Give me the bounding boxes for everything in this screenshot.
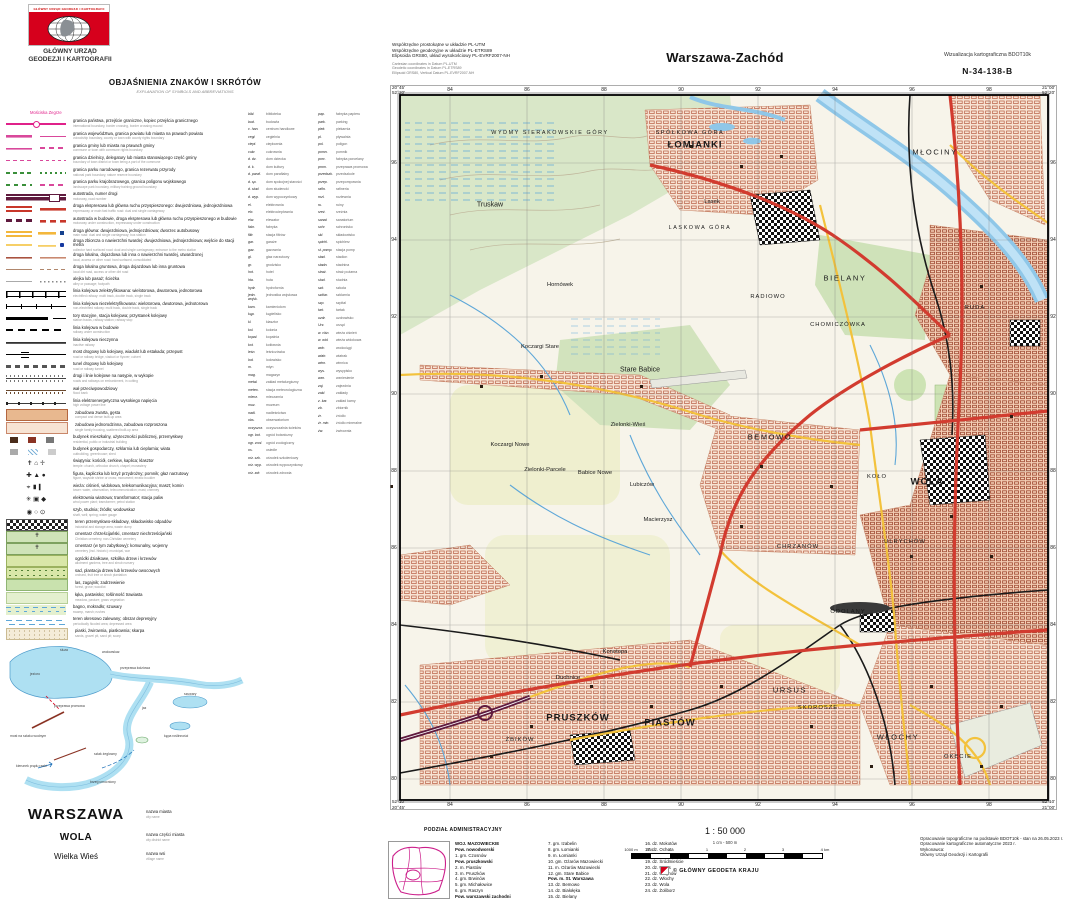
- grid-northing: 96: [1050, 160, 1056, 166]
- abbreviation-code: hydr.: [248, 286, 266, 290]
- abbreviation-entry: pol.poligon: [318, 142, 380, 146]
- abbreviation-entry: metal.zakład metalurgiczny: [248, 380, 314, 384]
- admin-inset-map: [388, 841, 450, 899]
- abbreviation-meaning: leśniczówka: [266, 350, 285, 354]
- legend-label: droga główna: dwujezdniowa, jednojezdnio…: [73, 229, 199, 238]
- abbreviation-meaning: poligon: [336, 142, 347, 146]
- map-label: URSUS: [773, 686, 807, 695]
- abbreviation-code: skł.: [318, 233, 336, 237]
- map-label: BIELANY: [824, 274, 867, 283]
- name-example-label: WOLA: [6, 832, 146, 843]
- hydro-label: przeprawa łodziowa: [120, 666, 150, 670]
- legend-row: tory stacyjne, stacja kolejowa; przystan…: [6, 312, 246, 324]
- legend-label: tory stacyjne, stacja kolejowa; przystan…: [73, 314, 167, 323]
- map-label: ODOLANY: [830, 609, 865, 615]
- abbreviation-entry: prom.przeprawa promowa: [318, 165, 380, 169]
- abbreviation-entry: szp.szpital: [318, 301, 380, 305]
- abbreviation-code: ru.: [318, 203, 336, 207]
- abbreviation-code: d. wyp.: [248, 195, 266, 199]
- publisher-line: © GŁÓWNY GEODETA KRAJU: [660, 866, 759, 875]
- legend-row: wał przeciwpowodziowyflood bank: [6, 385, 246, 397]
- abbreviation-meaning: szklarnia: [336, 293, 350, 297]
- legend-row: ✝cmentarz (w tym zabytkowy): komunalny, …: [6, 543, 246, 555]
- abbreviation-code: kol.: [248, 328, 266, 332]
- hydro-label: jaz: [142, 706, 146, 710]
- legend-subtitle: EXPLANATION OF SYMBOLS AND ABBREVIATIONS: [60, 89, 310, 94]
- abbreviation-code: kot.: [248, 343, 266, 347]
- abbreviation-entry: os.osiedle: [248, 448, 314, 452]
- agency-name: GŁÓWNY URZĄD GEODEZJI I KARTOGRAFII: [10, 48, 130, 64]
- legend-label-en: local dirt road, access or other dirt ro…: [73, 270, 185, 275]
- scalebar-tick: 4 km: [821, 847, 830, 852]
- abbreviation-meaning: budowla: [266, 120, 279, 124]
- abbreviation-entry: ośr. zdr.ośrodek zdrowia: [248, 471, 314, 475]
- abbreviation-code: kąp.: [248, 312, 266, 316]
- abbreviation-entry: elw.elewator: [248, 218, 314, 222]
- abbreviation-entry: gaz.gazownia: [248, 248, 314, 252]
- legend-label-en: railway under construction: [73, 330, 119, 335]
- abbreviation-code: d. k.: [248, 165, 266, 169]
- abbreviation-entry: cukr.cukrownia: [248, 150, 314, 154]
- legend-row: droga zbiorcza o nawierzchni twardej: dw…: [6, 239, 246, 251]
- abbreviation-entry: filtr.stacja filtrów: [248, 233, 314, 237]
- scalebar: [631, 853, 823, 859]
- abbreviation-entry: schr.schronisko: [318, 225, 380, 229]
- abbreviation-entry: przedszk.przedszkole: [318, 172, 380, 176]
- abbreviation-meaning: huta: [266, 278, 273, 282]
- abbreviation-entry: meteo.stacja meteorologiczna: [248, 388, 314, 392]
- abbreviation-code: wiatr.: [318, 354, 336, 358]
- hydro-label: wodowskaz: [102, 650, 120, 654]
- abbreviation-entry: bud.budowla: [248, 120, 314, 124]
- legend-label-en: expressway or main fast traffic road: du…: [73, 209, 232, 214]
- abbreviation-meaning: winnica: [336, 361, 348, 365]
- abbreviation-entry: st. pomp.stacja pomp: [318, 248, 380, 252]
- legend-label: linia kolejowa niezelektryfikowana: wiel…: [73, 302, 208, 311]
- abbreviation-meaning: urząd: [336, 323, 345, 327]
- name-example-row: WARSZAWAnazwa miastacity name: [6, 806, 246, 823]
- legend-row: granica gminy lub miasta na prawach gmin…: [6, 142, 246, 154]
- abbreviation-code: przedszk.: [318, 172, 336, 176]
- abbreviation-meaning: wodociągi: [336, 346, 352, 350]
- abbreviation-meaning: ciepłownia: [266, 142, 282, 146]
- grid-northing: 80: [1050, 776, 1056, 782]
- abbreviation-entry: elc.elektrociepłownia: [248, 210, 314, 214]
- abbreviation-meaning: piekarnia: [336, 127, 350, 131]
- admin-entry: Pow. warszawski zachodni: [455, 894, 543, 900]
- grid-easting: 90: [678, 802, 684, 808]
- map-label: SKOROSZE: [798, 705, 838, 711]
- legend-symbol: [6, 617, 66, 627]
- corner-ne: 21°00'52°20': [1042, 85, 1055, 96]
- abbreviation-entry: hydr.hydrofornia: [248, 286, 314, 290]
- abbreviation-code: mag.: [248, 373, 266, 377]
- abbreviation-meaning: elektrociepłownia: [266, 210, 293, 214]
- abbreviation-meaning: pływalnia: [336, 135, 350, 139]
- abbreviation-code: stadn.: [318, 263, 336, 267]
- abbreviation-entry: kopal.kopalnia: [248, 335, 314, 339]
- map-label: RADIOWO: [750, 294, 785, 300]
- abbreviation-meaning: rzeźnia: [336, 210, 347, 214]
- abbreviation-meaning: elektrownia: [266, 203, 284, 207]
- legend-label-en: road or railway bridge, viaduct or flyov…: [73, 355, 183, 360]
- legend-label-en: electrified railway: multi track, double…: [73, 294, 202, 299]
- legend-label-en: international boundary, border crossing,…: [73, 124, 198, 129]
- legend-symbol: ◉ ○ ⊙: [6, 508, 66, 518]
- abbreviation-code: schr.: [318, 225, 336, 229]
- abbreviation-entry: źr. min.źródło mineralne: [318, 421, 380, 425]
- abbreviation-code: uzdr.: [318, 316, 336, 320]
- abbreviation-meaning: rozlewnia: [336, 195, 351, 199]
- hydro-label: kierunek prądu rzeki: [16, 764, 47, 768]
- abbreviation-meaning: kąpielisko: [266, 312, 281, 316]
- name-example-desc-en: city name: [146, 815, 172, 820]
- scalebar-tick: 2: [744, 847, 746, 852]
- abbreviation-meaning: fabryka papieru: [336, 112, 360, 116]
- legend-symbol: [6, 325, 66, 335]
- abbreviation-meaning: ośrodek szkoleniowy: [266, 456, 298, 460]
- legend-row: autostrada w budowie, droga ekspresowa l…: [6, 215, 246, 227]
- map-label: Koczargi Nowe: [491, 442, 530, 448]
- coord-line-en: Ellipsoid GRS80, Vertical Datum PL-EVRF2…: [392, 71, 510, 76]
- abbreviation-entry: wdc.wodociągi: [318, 346, 380, 350]
- grid-easting: 94: [832, 802, 838, 808]
- scale-equivalence: 1 cm - 500 m: [640, 840, 810, 845]
- abbreviation-meaning: wysypisko: [336, 369, 352, 373]
- legend-label-en: local, access or other road: hard surfac…: [73, 258, 203, 263]
- abbreviation-meaning: ośrodek zdrowia: [266, 471, 291, 475]
- legend-symbol: [6, 119, 66, 129]
- abbreviation-code: zakł.: [318, 391, 336, 395]
- admin-entry: 24. dz. Żoliborz: [645, 888, 725, 894]
- legend-row: ✳ ▣ ◆elektrownia wiatrowa; transformator…: [6, 494, 246, 506]
- abbreviation-code: park.: [318, 120, 336, 124]
- abbreviation-meaning: biblioteka: [266, 112, 281, 116]
- abbreviation-code: gł.: [248, 255, 266, 259]
- abbreviation-entry: leśn.leśniczówka: [248, 350, 314, 354]
- abbreviation-code: oczyszcz.: [248, 426, 266, 430]
- legend-symbol: [6, 180, 66, 190]
- legend-label-en: alley or passage; footpath: [73, 282, 119, 287]
- legend-label: granica parku krajobrazowego, granica po…: [73, 180, 186, 189]
- abbreviation-entry: ciepł.ciepłownia: [248, 142, 314, 146]
- legend-label: świątynia: kościół, cerkiew, kaplica; kl…: [73, 459, 154, 468]
- abbreviation-meaning: wieża widokowa: [336, 338, 361, 342]
- abbreviation-code: el.: [248, 203, 266, 207]
- abbreviation-code: nadl.: [248, 411, 266, 415]
- legend-label: tunel drogowy lub kolejowyroad or railwa…: [73, 362, 123, 371]
- grid-easting: 98: [986, 802, 992, 808]
- abbreviation-entry: żw.żwirownia: [318, 429, 380, 433]
- map-label: Babice Nowe: [578, 470, 612, 476]
- grid-northing: 90: [391, 391, 397, 397]
- abbreviation-entry: tart.tartak: [318, 308, 380, 312]
- abbreviation-code: wdc.: [318, 346, 336, 350]
- grid-easting: 92: [755, 87, 761, 93]
- abbreviation-meaning: żwirownia: [336, 429, 351, 433]
- abbreviation-code: kam.: [248, 305, 266, 309]
- abbreviation-meaning: tartak: [336, 308, 345, 312]
- abbreviation-meaning: ogród botaniczny: [266, 433, 293, 437]
- abbreviation-meaning: kamieniołom: [266, 305, 286, 309]
- legend-row: zabudowa zwarta, gęstacompact and dense …: [6, 409, 246, 421]
- hydro-label: jezioro: [30, 672, 40, 676]
- abbreviation-meaning: dom studencki: [266, 187, 289, 191]
- abbreviation-code: przep.: [318, 180, 336, 184]
- hydro-label: szuwary: [184, 692, 196, 696]
- abbreviation-code: meteo.: [248, 388, 266, 392]
- legend-row: tunel drogowy lub kolejowyroad or railwa…: [6, 361, 246, 373]
- legend-label: linia elektroenergetyczna wysokiego napi…: [73, 399, 157, 408]
- abbreviation-meaning: muzeum: [266, 403, 279, 407]
- legend-symbol: [6, 301, 66, 311]
- abbreviation-code: zaj.: [318, 384, 336, 388]
- abbreviation-code: rozl.: [318, 195, 336, 199]
- legend-symbol: [6, 350, 66, 360]
- abbreviation-meaning: zakład metalurgiczny: [266, 380, 299, 384]
- abbreviation-meaning: grodzisko: [266, 263, 281, 267]
- abbreviation-entry: d. wyp.dom wypoczynkowy: [248, 195, 314, 199]
- legend-label-en: motorway, road number: [73, 197, 117, 202]
- abbreviation-code: ciepł.: [248, 142, 266, 146]
- grid-northing: 88: [1050, 468, 1056, 474]
- abbreviation-code: porc.: [318, 157, 336, 161]
- abbreviation-meaning: nadleśnictwo: [266, 411, 286, 415]
- abbreviation-entry: ru.ruiny: [318, 203, 380, 207]
- legend-symbol: [6, 386, 66, 396]
- abbreviation-code: os.: [248, 448, 266, 452]
- legend-symbol: [6, 605, 66, 615]
- abbreviation-meaning: straż pożarna: [336, 270, 357, 274]
- grid-easting: 88: [601, 87, 607, 93]
- abbreviation-entry: kl.klasztor: [248, 320, 314, 324]
- legend-symbol: [6, 398, 66, 408]
- abbreviation-meaning: źródło: [336, 414, 346, 418]
- abbreviation-code: winn.: [318, 361, 336, 365]
- abbreviation-meaning: centrum handlowe: [266, 127, 295, 131]
- hydro-label: szlak żeglowny: [94, 752, 117, 756]
- map-label: Lasek: [704, 199, 719, 205]
- legend-label: droga ekspresowa lub główna ruchu przysp…: [73, 204, 232, 213]
- abbreviation-entry: straż.straż pożarna: [318, 270, 380, 274]
- abbreviation-code: elw.: [248, 218, 266, 222]
- abbreviation-code: d. stud.: [248, 187, 266, 191]
- legend-label: granica województwa, granica powiatu lub…: [73, 132, 203, 141]
- legend-row: ✝cmentarz chrześcijański, cmentarz niech…: [6, 531, 246, 543]
- abbreviation-entry: kąp.kąpielisko: [248, 312, 314, 316]
- credits-block: Opracowanie topograficzne na podstawie B…: [920, 836, 1076, 858]
- abbreviation-meaning: garaże: [266, 240, 277, 244]
- legend-label-en: orchard, fruit tree or shrub plantation: [75, 573, 160, 578]
- abbreviation-code: muz.: [248, 403, 266, 407]
- legend-symbol: ✝: [6, 531, 68, 543]
- abbreviation-code: szp.: [318, 301, 336, 305]
- abbreviation-code: Urz.: [318, 323, 336, 327]
- abbreviation-meaning: ośrodek wypoczynkowy: [266, 463, 303, 467]
- abbreviation-meaning: lodowisko: [266, 358, 281, 362]
- legend-label-en: road or railway tunnel: [73, 367, 123, 372]
- scalebar-tick: 3: [782, 847, 784, 852]
- abbreviation-entry: rzeź.rzeźnia: [318, 210, 380, 214]
- abbreviation-code: hot.: [248, 270, 266, 274]
- legend-row: granica państwa, przejście graniczne, ko…: [6, 118, 246, 130]
- abbreviation-meaning: dom parafialny: [266, 172, 289, 176]
- abbreviation-code: z. kar.: [318, 399, 336, 403]
- map-label: WŁOCHY: [877, 733, 920, 742]
- abbreviation-meaning: zakłady: [336, 391, 348, 395]
- abbreviation-meaning: kotłownia: [266, 343, 281, 347]
- admin-entry: 15. dz. Bielany: [548, 894, 640, 900]
- legend-row: linia kolejowa zelektryfikowana: wieloto…: [6, 288, 246, 300]
- grid-northing: 84: [1050, 622, 1056, 628]
- legend-symbol: [6, 422, 68, 434]
- grid-northing: 80: [391, 776, 397, 782]
- abbreviation-code: c. han.: [248, 127, 266, 131]
- abbreviation-entry: fabr.fabryka: [248, 225, 314, 229]
- abbreviation-entry: bibl.biblioteka: [248, 112, 314, 116]
- abbreviation-meaning: składowisko: [336, 233, 355, 237]
- abbreviation-code: cegł.: [248, 135, 266, 139]
- abbreviation-code: d. sp.: [248, 180, 266, 184]
- legend-label: wał przeciwpowodziowyflood bank: [73, 387, 117, 396]
- sheet-code: N-34-138-B: [900, 66, 1075, 76]
- legend-label: drogi i linie kolejowe na nasypie, w wyk…: [73, 374, 154, 383]
- grid-easting: 94: [832, 87, 838, 93]
- legend-label-en: periodically flooded area; depressed are…: [73, 622, 157, 627]
- map-label: ULRYCHÓW: [884, 539, 926, 545]
- abbreviation-meaning: dom dziecka: [266, 157, 286, 161]
- abbreviation-meaning: dom kultury: [266, 165, 284, 169]
- abbreviation-meaning: cegielnia: [266, 135, 280, 139]
- abbreviation-meaning: źródło mineralne: [336, 421, 362, 425]
- map-label: MŁOCINY: [912, 148, 957, 157]
- legend-label: droga lokalna gruntowa, droga dojazdowa …: [73, 265, 185, 274]
- abbreviation-entry: hta.huta: [248, 278, 314, 282]
- abbreviation-code: st. pomp.: [318, 248, 336, 252]
- abbreviation-entry: sanat.sanatorium: [318, 218, 380, 222]
- legend-label: figura, kapliczka lub krzyż przydrożny; …: [73, 472, 188, 481]
- legend-row: granica parku krajobrazowego, granica po…: [6, 179, 246, 191]
- map-label: RUDA: [965, 305, 985, 311]
- legend-row: budynek mieszkalny, użyteczności publicz…: [6, 434, 246, 446]
- legend-symbol: [6, 592, 68, 604]
- legend-label: budynek gospodarczy, szklarnia lub ciepl…: [73, 447, 170, 456]
- map-label: Konotopa: [603, 649, 628, 655]
- name-example-desc: nazwa miastacity name: [146, 810, 172, 819]
- abbreviation-code: rafin.: [318, 187, 336, 191]
- legend-label: budynek mieszkalny, użyteczności publicz…: [73, 435, 183, 444]
- legend-label: linia kolejowa w budowierailway under co…: [73, 326, 119, 335]
- name-example-desc: nazwa wsivillage name: [146, 852, 165, 861]
- abbreviation-meaning: szpital: [336, 301, 346, 305]
- abbreviation-entry: piek.piekarnia: [318, 127, 380, 131]
- legend-symbol: [6, 143, 66, 153]
- legend-label: bagno, mokradło; szuwaryswamp, marsh; ru…: [73, 605, 122, 614]
- abbreviation-entry: gł.głaz narzutowy: [248, 255, 314, 259]
- abbreviation-meaning: kopalnia: [266, 335, 279, 339]
- abbreviation-entry: cegł.cegielnia: [248, 135, 314, 139]
- legend-symbol: [6, 447, 66, 457]
- abbreviation-meaning: wzniesienie: [336, 376, 354, 380]
- legend-label: teren okresowo zalewany; obszar depresyj…: [73, 617, 157, 626]
- abbreviation-code: straż.: [318, 270, 336, 274]
- legend-label: autostrada, numer drogimotorway, road nu…: [73, 192, 117, 201]
- map-label: Lubiczów: [630, 482, 654, 488]
- grid-northing: 96: [391, 160, 397, 166]
- abbreviation-meaning: oczyszczalnia ścieków: [266, 426, 301, 430]
- abbreviation-code: sanat.: [318, 218, 336, 222]
- legend-label-en: swamp, marsh; rushes: [73, 610, 122, 615]
- abbreviation-code: ośr. szk.: [248, 456, 266, 460]
- abbreviation-meaning: spichlerz: [336, 240, 350, 244]
- coordinate-system-note: Współrzędne prostokątne w układzie PL-UT…: [392, 42, 510, 76]
- abbreviation-meaning: studnia: [336, 278, 347, 282]
- legend-label: ogródki działkowe, szkółka drzew i krzew…: [75, 557, 156, 566]
- legend-symbol: [6, 155, 66, 165]
- abbreviation-code: gr.: [248, 263, 266, 267]
- abbreviation-entry: mlecz.mleczarnia: [248, 395, 314, 399]
- abbreviation-code: szklar.: [318, 293, 336, 297]
- abbreviation-entry: kot.kotłownia: [248, 343, 314, 347]
- legend-row: droga lokalna gruntowa, droga dojazdowa …: [6, 264, 246, 276]
- abbreviation-meaning: pomnik: [336, 150, 347, 154]
- abbreviation-meaning: ogród zoologiczny: [266, 441, 294, 445]
- abbreviation-entry: d. stud.dom studencki: [248, 187, 314, 191]
- legend-label-en: forest, grove; woodlot: [75, 585, 125, 590]
- legend-label-en: national park boundary, nature reserve b…: [73, 173, 175, 178]
- abbreviation-meaning: sanatorium: [336, 218, 353, 222]
- legend-symbol: [6, 555, 68, 567]
- abbreviation-meaning: zbiornik: [336, 406, 348, 410]
- legend-label-en: Christian cemetery, non-Christian cemete…: [75, 537, 172, 542]
- map-label: Koczargi Stare: [521, 344, 559, 350]
- abbreviation-meaning: elewator: [266, 218, 279, 222]
- legend-label-en: roads and railways on embankment, in cut…: [73, 379, 154, 384]
- legend-row: las, zagajnik; zadrzewienieforest, grove…: [6, 579, 246, 591]
- legend-symbol: ✝ ⌂ ♱: [6, 459, 66, 469]
- abbreviation-code: mlecz.: [248, 395, 266, 399]
- map-label: WYDMY SIERAKOWSKIE GÓRY: [491, 130, 608, 136]
- abbreviation-meaning: uzdrowisko: [336, 316, 354, 320]
- abbreviation-entry: Urz.urząd: [318, 323, 380, 327]
- legend-row: droga lokalna, dojazdowa lub inna o nawi…: [6, 252, 246, 264]
- legend-row: linia elektroenergetyczna wysokiego napi…: [6, 397, 246, 409]
- abbreviation-entry: przep.przepompownia: [318, 180, 380, 184]
- sheet-title: Warszawa-Zachód: [560, 50, 890, 65]
- abbreviation-meaning: przeprawa promowa: [336, 165, 368, 169]
- grid-northing: 86: [1050, 545, 1056, 551]
- legend-row: budynek gospodarczy, szklarnia lub ciepl…: [6, 446, 246, 458]
- legend-row: autostrada, numer drogimotorway, road nu…: [6, 191, 246, 203]
- map-label: SPÓŁKOWA GÓRA: [656, 130, 725, 136]
- legend-label-en: high voltage power line: [73, 403, 157, 408]
- scalebar-tick: 500: [647, 847, 654, 852]
- abbreviation-code: źr.: [318, 414, 336, 418]
- abbreviations-column-2: pap.fabryka papierupark.parkingpiek.piek…: [318, 112, 380, 437]
- legend-row: most drogowy lub kolejowy, wiadukt lub e…: [6, 349, 246, 361]
- abbreviation-code: wzn.: [318, 376, 336, 380]
- legend-label-en: compact and dense built-up area: [75, 415, 121, 420]
- legend-symbol: [6, 289, 66, 299]
- legend-rows: granica państwa, przejście graniczne, ko…: [6, 118, 246, 640]
- hydro-label: śluza: [60, 648, 68, 652]
- name-style-examples: WARSZAWAnazwa miastacity nameWOLAnazwa c…: [6, 806, 246, 870]
- abbreviation-meaning: hydrofornia: [266, 286, 284, 290]
- abbreviation-code: d. dz.: [248, 157, 266, 161]
- abbreviation-entry: park.parking: [318, 120, 380, 124]
- abbreviation-code: lod.: [248, 358, 266, 362]
- legend-row: alejka lub pasaż; ścieżkaalley or passag…: [6, 276, 246, 288]
